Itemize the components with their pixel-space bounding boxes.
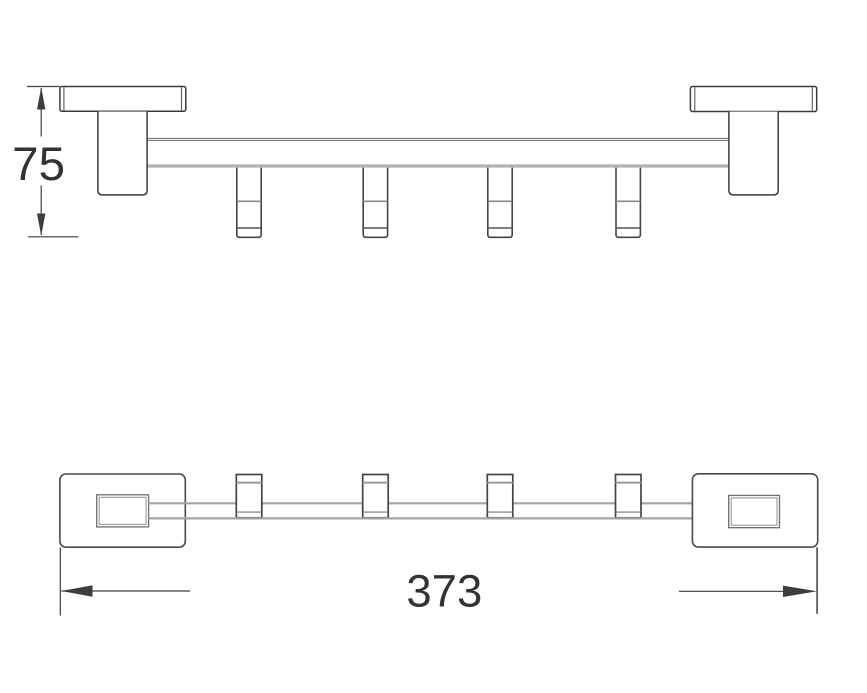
svg-text:373: 373 (406, 566, 482, 617)
svg-text:75: 75 (12, 138, 65, 191)
